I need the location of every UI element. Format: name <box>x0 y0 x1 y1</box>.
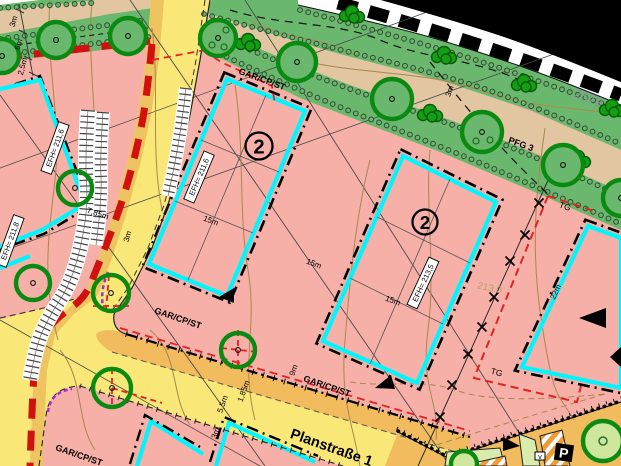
svg-text:v: v <box>538 454 542 461</box>
svg-text:2: 2 <box>253 136 264 158</box>
svg-text:2: 2 <box>420 212 430 233</box>
